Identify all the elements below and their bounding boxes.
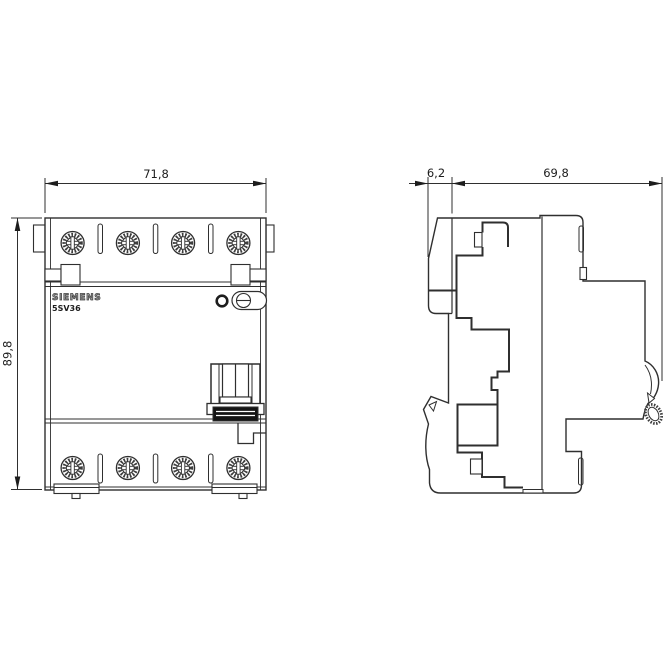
- mounting-foot-right: [212, 484, 257, 499]
- technical-drawing-canvas: 71,8 89,8 6,2 69,8 SIEMENS 5SV36: [0, 0, 665, 665]
- arrowhead: [415, 181, 428, 187]
- model-number-text: 5SV36: [52, 304, 81, 313]
- toggle-grip: [213, 407, 258, 421]
- side-view: [424, 216, 665, 494]
- terminal-screw-icon: [116, 232, 139, 255]
- dim-label-body-depth: 69,8: [521, 167, 591, 180]
- terminal-screw-icon: [61, 232, 84, 255]
- dim-label-front-height: 89,8: [2, 319, 15, 389]
- busbar-tab-left: [34, 225, 46, 252]
- side-body-outline: [424, 216, 659, 494]
- arrowhead: [649, 181, 662, 187]
- mounting-foot-left: [54, 484, 99, 499]
- terminal-screw-icon: [172, 232, 195, 255]
- brand-logo-text: SIEMENS: [52, 293, 101, 303]
- arrowhead: [452, 181, 465, 187]
- seal-screw-icon: [232, 292, 267, 310]
- front-view: [34, 218, 275, 499]
- dim-front-height: [11, 218, 42, 490]
- front-body-outline: [45, 218, 266, 490]
- arrowhead: [45, 181, 58, 187]
- arrowhead: [253, 181, 266, 187]
- dim-label-front-width: 71,8: [120, 168, 192, 181]
- busbar-tab-right: [266, 225, 274, 252]
- terminal-screw-icon: [172, 457, 195, 480]
- terminal-screw-icon: [227, 457, 250, 480]
- terminal-screw-icon: [61, 457, 84, 480]
- terminal-screw-icon: [227, 232, 250, 255]
- arrowhead: [15, 477, 21, 490]
- terminal-screw-icon: [116, 457, 139, 480]
- dim-front-width: [45, 178, 266, 213]
- arrowhead: [15, 218, 21, 231]
- dim-label-handle-depth: 6,2: [412, 167, 460, 180]
- dimension-drawing-svg: [0, 0, 665, 665]
- test-button-icon: [217, 296, 228, 307]
